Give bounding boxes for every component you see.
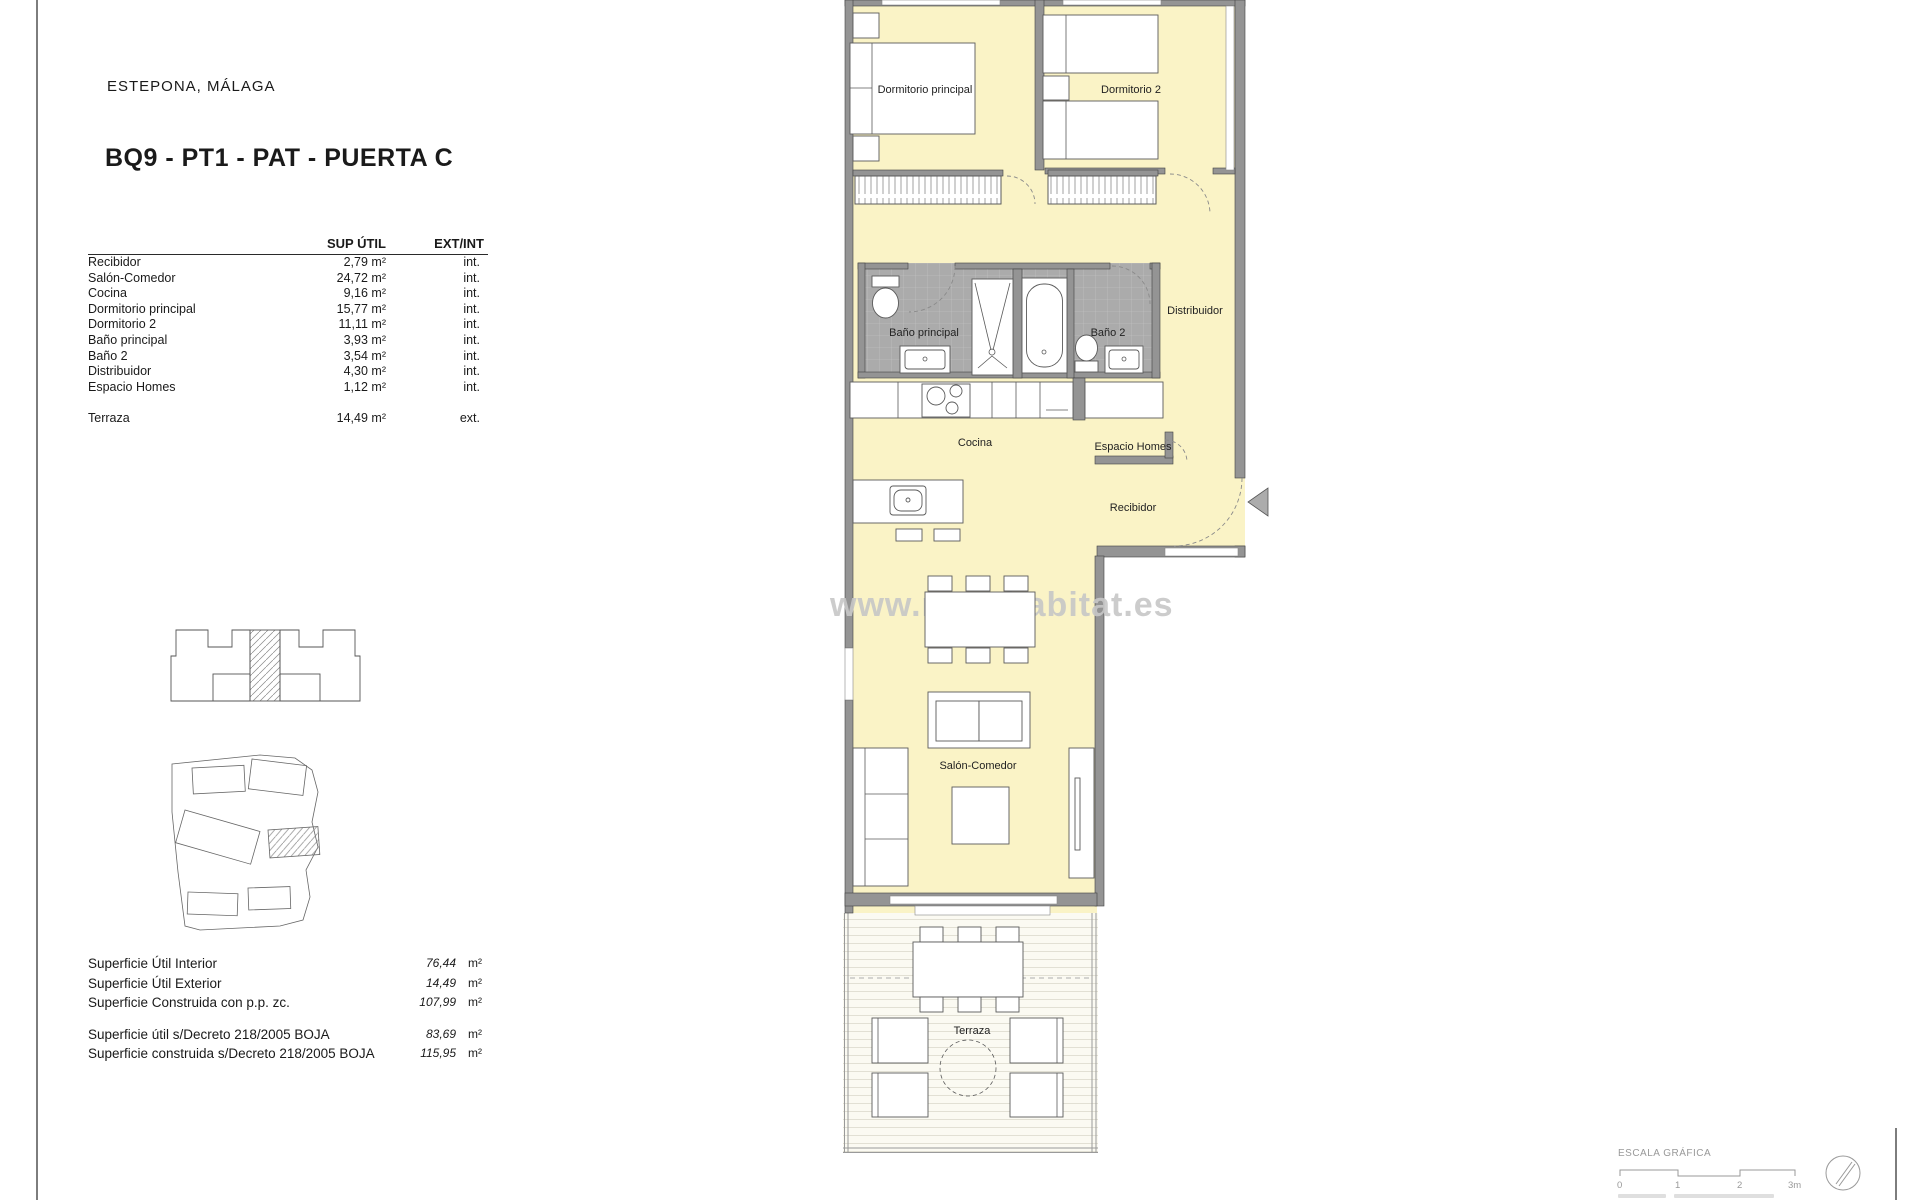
- room-area: 3,54 m²: [238, 349, 386, 363]
- room-name: Baño principal: [88, 333, 167, 347]
- room-extint: int.: [388, 255, 480, 269]
- location-text: ESTEPONA, MÁLAGA: [107, 78, 276, 95]
- north-compass-icon: [1826, 1156, 1860, 1190]
- summary-row: Superficie Útil Exterior14,49m²: [88, 976, 498, 996]
- building-key-plan: [168, 625, 363, 707]
- summary-row: Superficie Construida con p.p. zc.107,99…: [88, 995, 498, 1015]
- label-terraza: Terraza: [954, 1025, 992, 1037]
- table-row: Cocina9,16 m²int.: [88, 286, 488, 302]
- room-area: 24,72 m²: [238, 271, 386, 285]
- room-name: Dormitorio principal: [88, 302, 196, 316]
- summary-label: Superficie útil s/Decreto 218/2005 BOJA: [88, 1027, 330, 1042]
- room-extint: int.: [388, 380, 480, 394]
- room-extint: int.: [388, 349, 480, 363]
- summary-value: 76,44: [368, 956, 456, 970]
- summary-row: Superficie construida s/Decreto 218/2005…: [88, 1046, 498, 1066]
- summary-row: Superficie útil s/Decreto 218/2005 BOJA8…: [88, 1027, 498, 1047]
- label-distribuidor: Distribuidor: [1167, 305, 1223, 317]
- label-recibidor: Recibidor: [1110, 502, 1157, 514]
- room-name: Baño 2: [88, 349, 128, 363]
- table-row: Distribuidor4,30 m²int.: [88, 364, 488, 380]
- scale-bar: [1620, 1170, 1795, 1176]
- label-espacio-homes: Espacio Homes: [1094, 441, 1172, 453]
- table-row: Salón-Comedor24,72 m²int.: [88, 271, 488, 287]
- page-title: BQ9 - PT1 - PAT - PUERTA C: [105, 144, 453, 173]
- table-row: Dormitorio 211,11 m²int.: [88, 317, 488, 333]
- summary-unit: m²: [468, 1046, 482, 1060]
- room-extint: int.: [388, 333, 480, 347]
- summary-label: Superficie Útil Exterior: [88, 976, 222, 991]
- plan-sheet: { "page": { "location": "ESTEPONA, MÁLAG…: [0, 0, 1920, 1200]
- room-extint: int.: [388, 317, 480, 331]
- label-salon-comedor: Salón-Comedor: [939, 760, 1016, 772]
- site-key-plan: [160, 752, 365, 934]
- room-area: 1,12 m²: [238, 380, 386, 394]
- label-cocina: Cocina: [958, 437, 993, 449]
- graphic-scale: ESCALA GRÁFICA 0 1 2 3m: [1610, 1142, 1910, 1200]
- room-area: 9,16 m²: [238, 286, 386, 300]
- room-extint: int.: [388, 286, 480, 300]
- room-extint: int.: [388, 364, 480, 378]
- room-name: Terraza: [88, 411, 130, 425]
- room-area: 11,11 m²: [238, 317, 386, 331]
- table-spacer: [88, 395, 488, 411]
- table-row: Dormitorio principal15,77 m²int.: [88, 302, 488, 318]
- summary-value: 107,99: [368, 995, 456, 1009]
- summary-value: 83,69: [368, 1027, 456, 1041]
- scale-tick: 1: [1675, 1180, 1680, 1191]
- summary-label: Superficie Construida con p.p. zc.: [88, 995, 290, 1010]
- scale-title: ESCALA GRÁFICA: [1618, 1146, 1711, 1159]
- summary-unit: m²: [468, 976, 482, 990]
- table-row: Recibidor2,79 m²int.: [88, 255, 488, 271]
- room-area: 2,79 m²: [238, 255, 386, 269]
- room-area: 14,49 m²: [238, 411, 386, 425]
- areas-table: SUP ÚTIL EXT/INT Recibidor2,79 m²int. Sa…: [88, 236, 488, 427]
- summary-unit: m²: [468, 1027, 482, 1041]
- summary-value: 14,49: [368, 976, 456, 990]
- room-name: Dormitorio 2: [88, 317, 156, 331]
- room-extint: int.: [388, 302, 480, 316]
- scale-ticks: 0 1 2 3m: [1617, 1180, 1801, 1191]
- scale-tick: 2: [1737, 1180, 1742, 1191]
- entrance-arrow-icon: [1248, 488, 1268, 516]
- table-row: Espacio Homes1,12 m²int.: [88, 380, 488, 396]
- label-dormitorio-2: Dormitorio 2: [1101, 84, 1161, 96]
- room-name: Salón-Comedor: [88, 271, 176, 285]
- floor-plan: www.novahabitat.es: [820, 0, 1280, 1165]
- room-area: 3,93 m²: [238, 333, 386, 347]
- table-row: Baño principal3,93 m²int.: [88, 333, 488, 349]
- summary-gap: [88, 1015, 498, 1027]
- room-extint: ext.: [388, 411, 480, 425]
- summary-unit: m²: [468, 956, 482, 970]
- summary-value: 115,95: [368, 1046, 456, 1060]
- table-row: Terraza14,49 m²ext.: [88, 411, 488, 427]
- sheet-border-left: [36, 0, 38, 1200]
- areas-table-header: SUP ÚTIL EXT/INT: [88, 236, 488, 255]
- room-name: Cocina: [88, 286, 127, 300]
- room-name: Distribuidor: [88, 364, 151, 378]
- label-bano-2: Baño 2: [1091, 327, 1126, 339]
- label-dormitorio-principal: Dormitorio principal: [878, 84, 973, 96]
- summary-row: Superficie Útil Interior76,44m²: [88, 956, 498, 976]
- room-name: Espacio Homes: [88, 380, 176, 394]
- scale-tick: 3m: [1788, 1180, 1801, 1191]
- label-bano-principal: Baño principal: [889, 327, 959, 339]
- room-extint: int.: [388, 271, 480, 285]
- col-header-ext-int: EXT/INT: [388, 236, 484, 251]
- room-area: 4,30 m²: [238, 364, 386, 378]
- room-area: 15,77 m²: [238, 302, 386, 316]
- table-row: Baño 23,54 m²int.: [88, 349, 488, 365]
- summary-unit: m²: [468, 995, 482, 1009]
- surface-summary: Superficie Útil Interior76,44m² Superfic…: [88, 956, 498, 1066]
- room-name: Recibidor: [88, 255, 141, 269]
- summary-label: Superficie construida s/Decreto 218/2005…: [88, 1046, 375, 1061]
- col-header-sup-util: SUP ÚTIL: [238, 236, 386, 251]
- summary-label: Superficie Útil Interior: [88, 956, 217, 971]
- scale-tick: 0: [1617, 1180, 1622, 1191]
- illegible-footnote: [1618, 1194, 1774, 1198]
